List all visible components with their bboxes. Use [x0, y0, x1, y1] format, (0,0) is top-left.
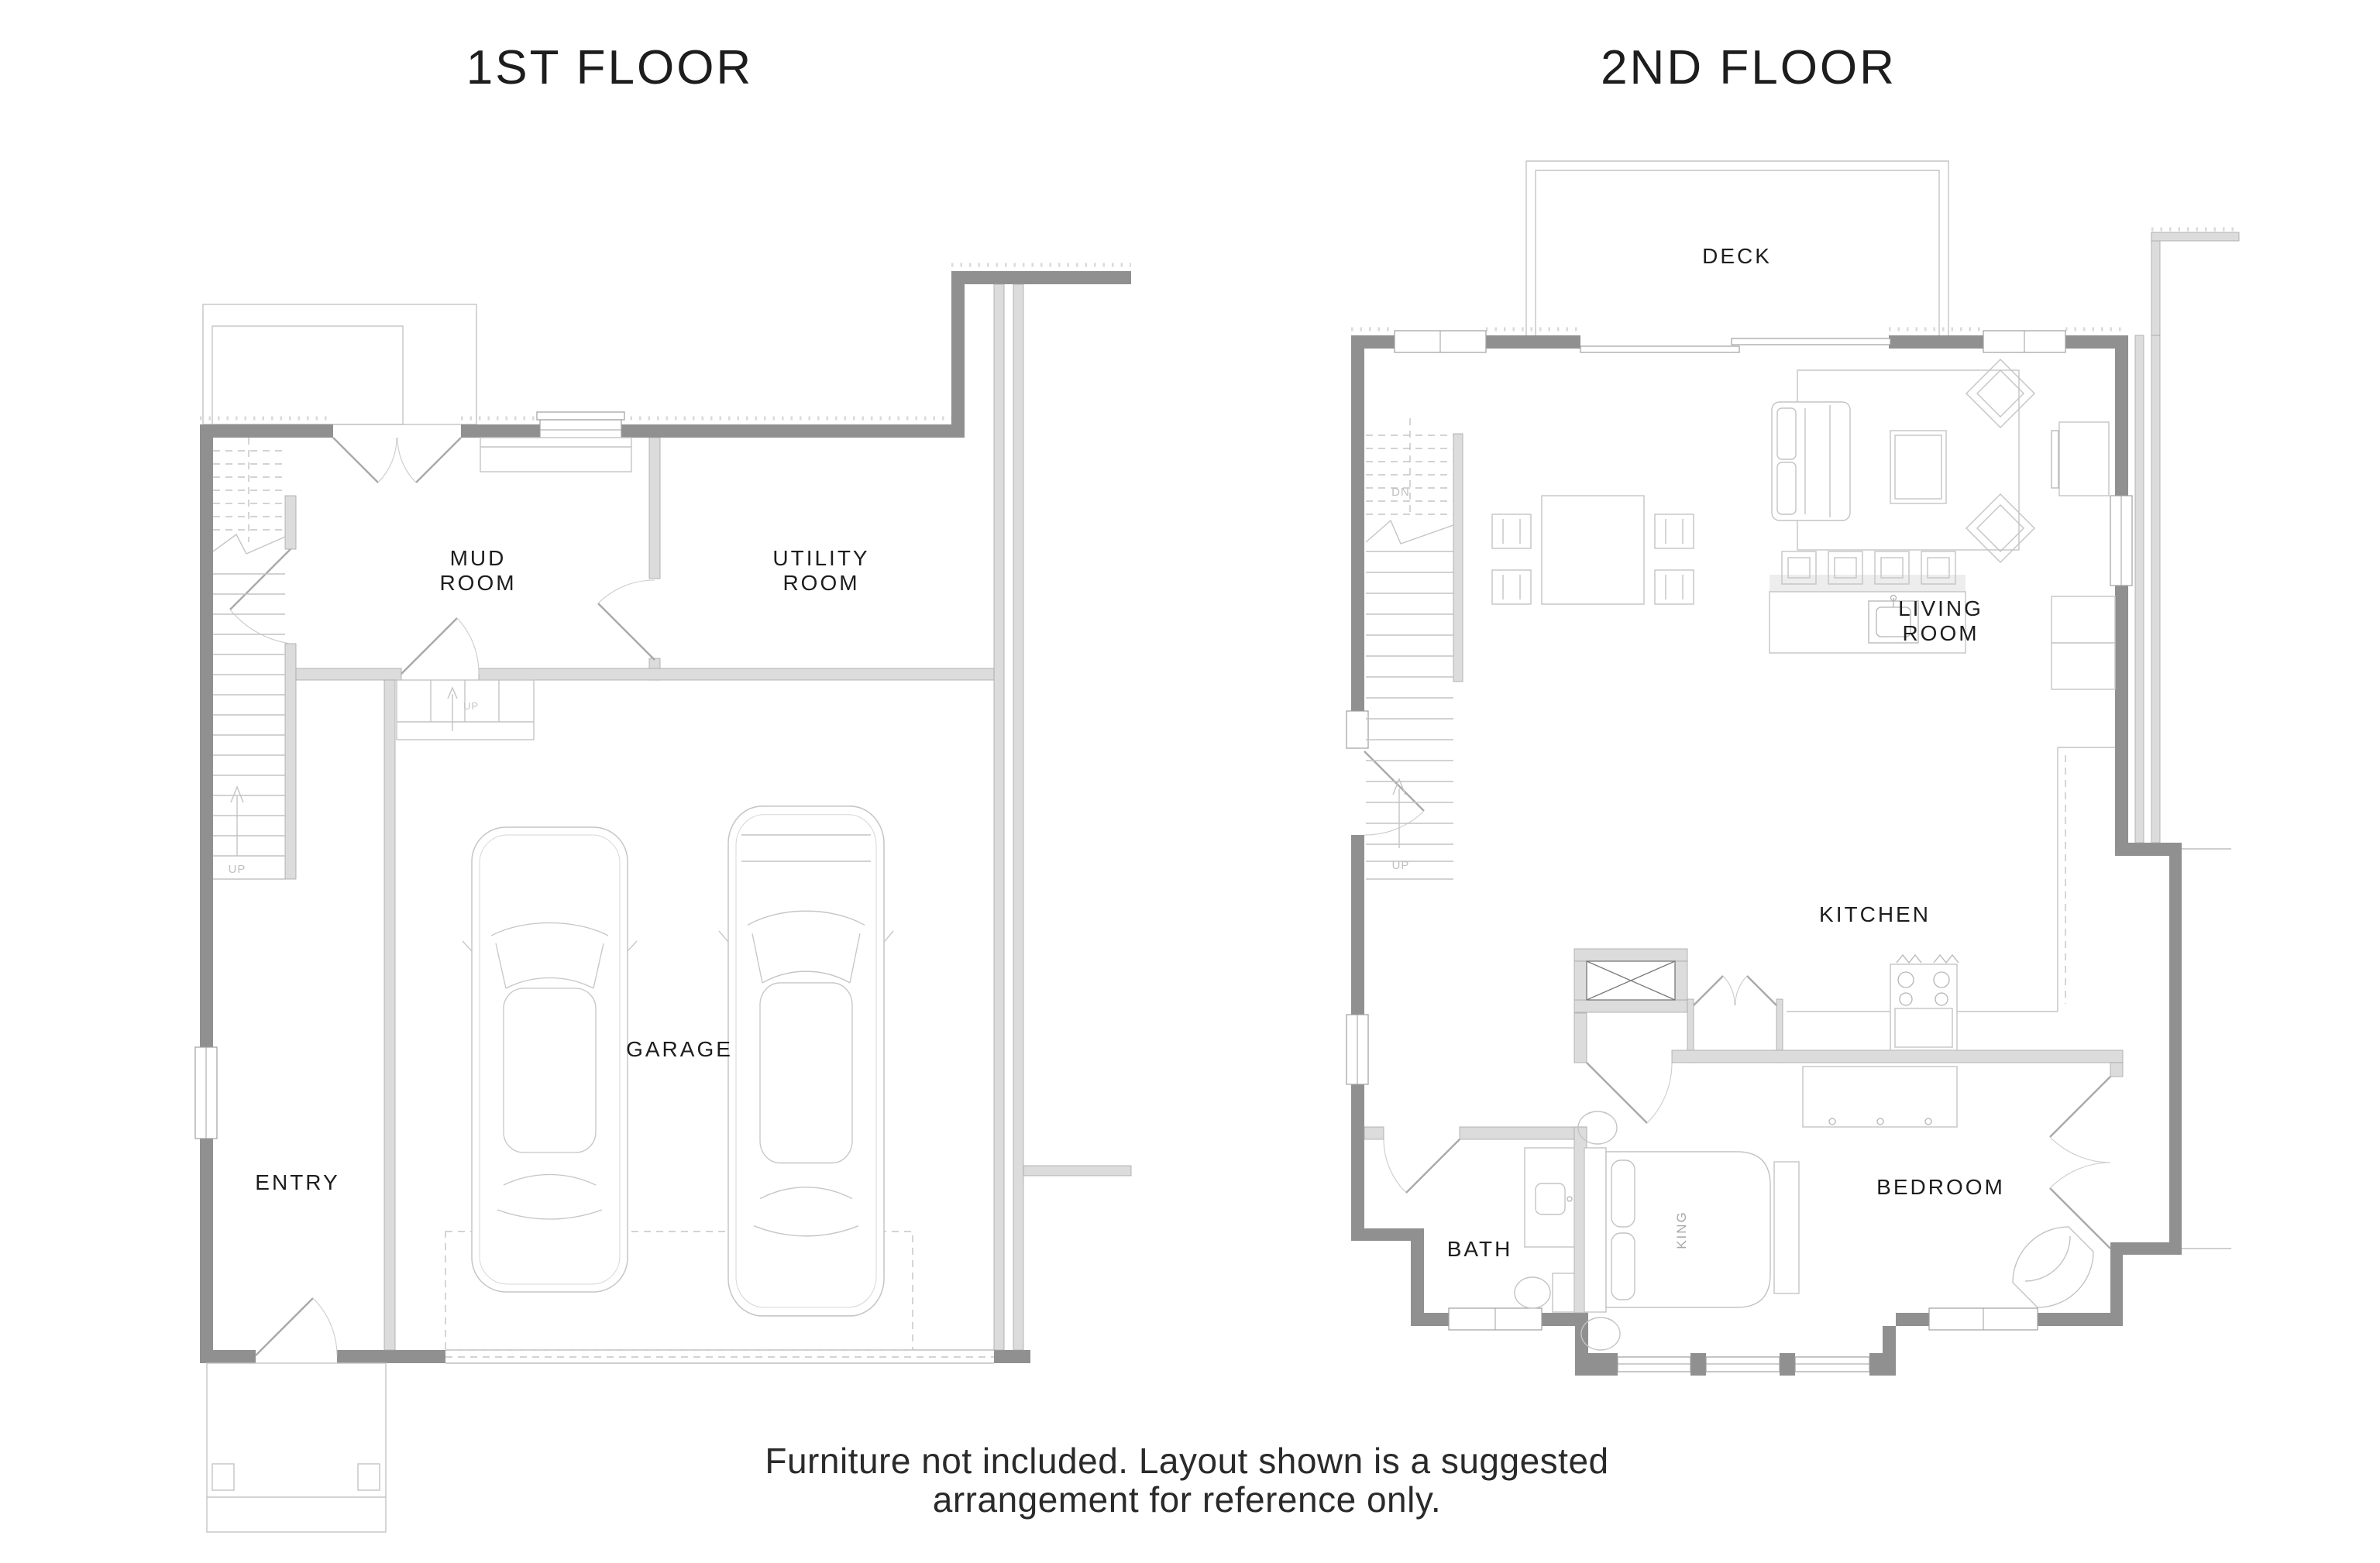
coffee-table — [1890, 431, 1946, 503]
footnote-line-1: Furniture not included. Layout shown is … — [765, 1441, 1608, 1481]
dining-table — [1542, 496, 1644, 604]
floor1-party-walls — [994, 284, 1131, 1350]
up-arrow-2f — [1393, 779, 1405, 848]
headboard — [1584, 1148, 1606, 1312]
living-room-label-2: ROOM — [1902, 621, 1979, 645]
bedroom-furniture: KING — [1578, 1067, 2093, 1350]
floor2-stairs: DN UP — [1366, 418, 1453, 879]
mud-room-bench — [480, 438, 631, 472]
dining-chair — [1492, 570, 1531, 604]
utility-room-label-1: UTILITY — [772, 546, 869, 570]
steps-up-label: UP — [463, 700, 479, 712]
mud-room-label-1: MUD — [450, 546, 507, 570]
bedroom-closet-doors — [2050, 1077, 2110, 1249]
utility-room-door — [598, 580, 655, 660]
up-arrow-small — [448, 688, 457, 731]
floor1-rear-stoop — [203, 304, 476, 424]
floor1-title: 1ST FLOOR — [466, 41, 753, 94]
stairs-up-label-2f: UP — [1392, 859, 1410, 872]
stair-hall-door — [230, 549, 291, 644]
living-room-label-1: LIVING — [1898, 596, 1983, 620]
refrigerator — [2052, 596, 2115, 689]
accent-chair — [1966, 494, 2034, 562]
bedroom-bay-windows — [1618, 1357, 1869, 1372]
stairs-down-label: DN — [1391, 486, 1410, 499]
bath-label: BATH — [1447, 1237, 1513, 1261]
pantry-double-doors — [1694, 976, 1776, 1005]
tv-screen — [2052, 431, 2058, 488]
entry-label: ENTRY — [255, 1170, 339, 1194]
deck-label: DECK — [1702, 244, 1772, 268]
bedroom-chair — [2013, 1227, 2093, 1307]
bath-vanity — [1525, 1148, 1574, 1247]
king-bed: KING — [1584, 1148, 1770, 1312]
dining-chair — [1492, 514, 1531, 548]
sofa — [1772, 402, 1850, 520]
garage-steps: UP — [397, 680, 534, 740]
dresser — [1803, 1067, 1957, 1127]
mud-room-double-door — [333, 438, 461, 483]
bedroom-door — [1587, 1063, 1672, 1123]
tv-console — [2052, 422, 2109, 496]
dining-chair — [1655, 570, 1694, 604]
bath-door — [1384, 1139, 1460, 1193]
floor-plan-page: 1ST FLOOR 2ND FLOOR — [0, 0, 2380, 1563]
floor2-plan: DN UP — [1346, 161, 2239, 1376]
living-room-furniture — [1772, 359, 2109, 562]
siding-hatch — [200, 265, 1131, 418]
bed-bench — [1774, 1162, 1799, 1293]
bath-fixtures — [1515, 1148, 1574, 1312]
kitchen-label: KITCHEN — [1819, 902, 1931, 926]
mechanical-closet — [1587, 961, 1675, 1000]
up-arrow — [231, 787, 243, 856]
floor2-party-walls — [2135, 232, 2239, 1249]
floor-plan-drawing: 1ST FLOOR 2ND FLOOR — [0, 0, 2380, 1563]
footnote-line-2: arrangement for reference only. — [933, 1479, 1441, 1520]
utility-room-label-2: ROOM — [782, 571, 859, 595]
floor1-stairs: UP — [213, 438, 285, 879]
stairs-up-label: UP — [229, 863, 246, 876]
window-sill — [537, 412, 624, 420]
garage-label: GARAGE — [626, 1037, 733, 1061]
range-stove — [1890, 955, 1959, 1050]
dining-chair — [1655, 514, 1694, 548]
car-suv — [719, 806, 893, 1316]
mud-room-label-2: ROOM — [439, 571, 516, 595]
floor1-plan: UP UP — [195, 265, 1131, 1532]
entry-front-door — [256, 1298, 337, 1355]
mud-room-south-door — [401, 618, 479, 674]
bed-size-label: KING — [1674, 1211, 1689, 1249]
car-sedan — [463, 827, 637, 1292]
accent-chair — [1966, 359, 2034, 428]
floor2-title: 2ND FLOOR — [1601, 41, 1897, 94]
deck-sliding-door — [1580, 338, 1890, 352]
stair-hall-window — [1346, 711, 1368, 748]
toilet — [1515, 1273, 1574, 1312]
siding-hatch-2f — [1351, 229, 2239, 329]
entry-porch — [207, 1363, 386, 1532]
floor1-exterior-walls — [200, 271, 1131, 1363]
dining-set — [1492, 496, 1694, 604]
floor1-interior-walls — [285, 438, 994, 1350]
bedroom-label: BEDROOM — [1876, 1175, 2005, 1199]
